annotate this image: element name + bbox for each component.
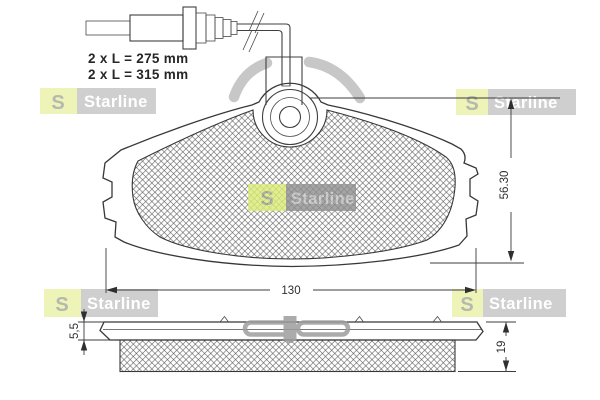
wire-break-mark xyxy=(243,30,258,52)
arrow-down-icon xyxy=(503,361,509,372)
cable-length-note-2: 2 x L = 315 mm xyxy=(88,67,188,82)
spring-arm-right xyxy=(309,62,360,98)
strain-relief-rib xyxy=(196,13,206,43)
dim-label-total: 19 xyxy=(496,341,508,354)
arrow-up-icon xyxy=(81,340,87,351)
starline-s-icon: S xyxy=(460,294,473,316)
starline-s-icon: S xyxy=(465,93,478,115)
logo-wordmark: Starline xyxy=(489,295,553,313)
technical-drawing: S Starline S Starline S Starline S Starl… xyxy=(0,0,600,400)
dim-label-width: 130 xyxy=(281,285,300,297)
starline-logo-center: S Starline xyxy=(248,184,356,211)
starline-s-icon: S xyxy=(260,188,273,210)
wire-break-mark xyxy=(249,11,264,33)
brake-pad-diagram: S Starline S Starline S Starline S Starl… xyxy=(0,0,600,400)
starline-logo-bottom-right: S Starline xyxy=(452,289,566,317)
logo-wordmark: Starline xyxy=(87,295,151,313)
connector-lead xyxy=(86,21,130,35)
strain-relief-rib xyxy=(231,22,237,35)
logo-wordmark: Starline xyxy=(291,190,355,208)
starline-s-icon: S xyxy=(55,294,68,316)
brake-pad-side-view xyxy=(100,316,483,372)
arrow-up-icon xyxy=(503,322,509,333)
plate-notch xyxy=(355,317,364,323)
starline-logo-top-left: S Starline xyxy=(40,88,156,114)
logo-wordmark: Starline xyxy=(84,93,148,111)
spring-arm-left xyxy=(234,63,267,97)
logo-wordmark: Starline xyxy=(494,94,558,112)
strain-relief-rib xyxy=(206,15,215,41)
friction-surface-side xyxy=(120,340,455,372)
starline-s-icon: S xyxy=(51,92,64,114)
connector-flange xyxy=(183,7,196,49)
strain-relief-rib xyxy=(215,18,223,39)
clip-foot xyxy=(287,338,294,343)
wear-sensor-connector xyxy=(86,7,237,49)
strain-relief-rib xyxy=(223,20,231,37)
dim-label-height: 56.30 xyxy=(499,171,511,200)
starline-logo-top-right: S Starline xyxy=(456,89,576,115)
plate-notch xyxy=(433,317,442,323)
arrow-down-icon xyxy=(508,251,514,262)
connector-body xyxy=(130,15,183,41)
dim-label-backplate: 5,5 xyxy=(69,323,81,339)
cable-length-note-1: 2 x L = 275 mm xyxy=(88,51,188,66)
starline-logo-mid-left: S Starline xyxy=(44,289,158,317)
plate-notch xyxy=(220,317,229,323)
